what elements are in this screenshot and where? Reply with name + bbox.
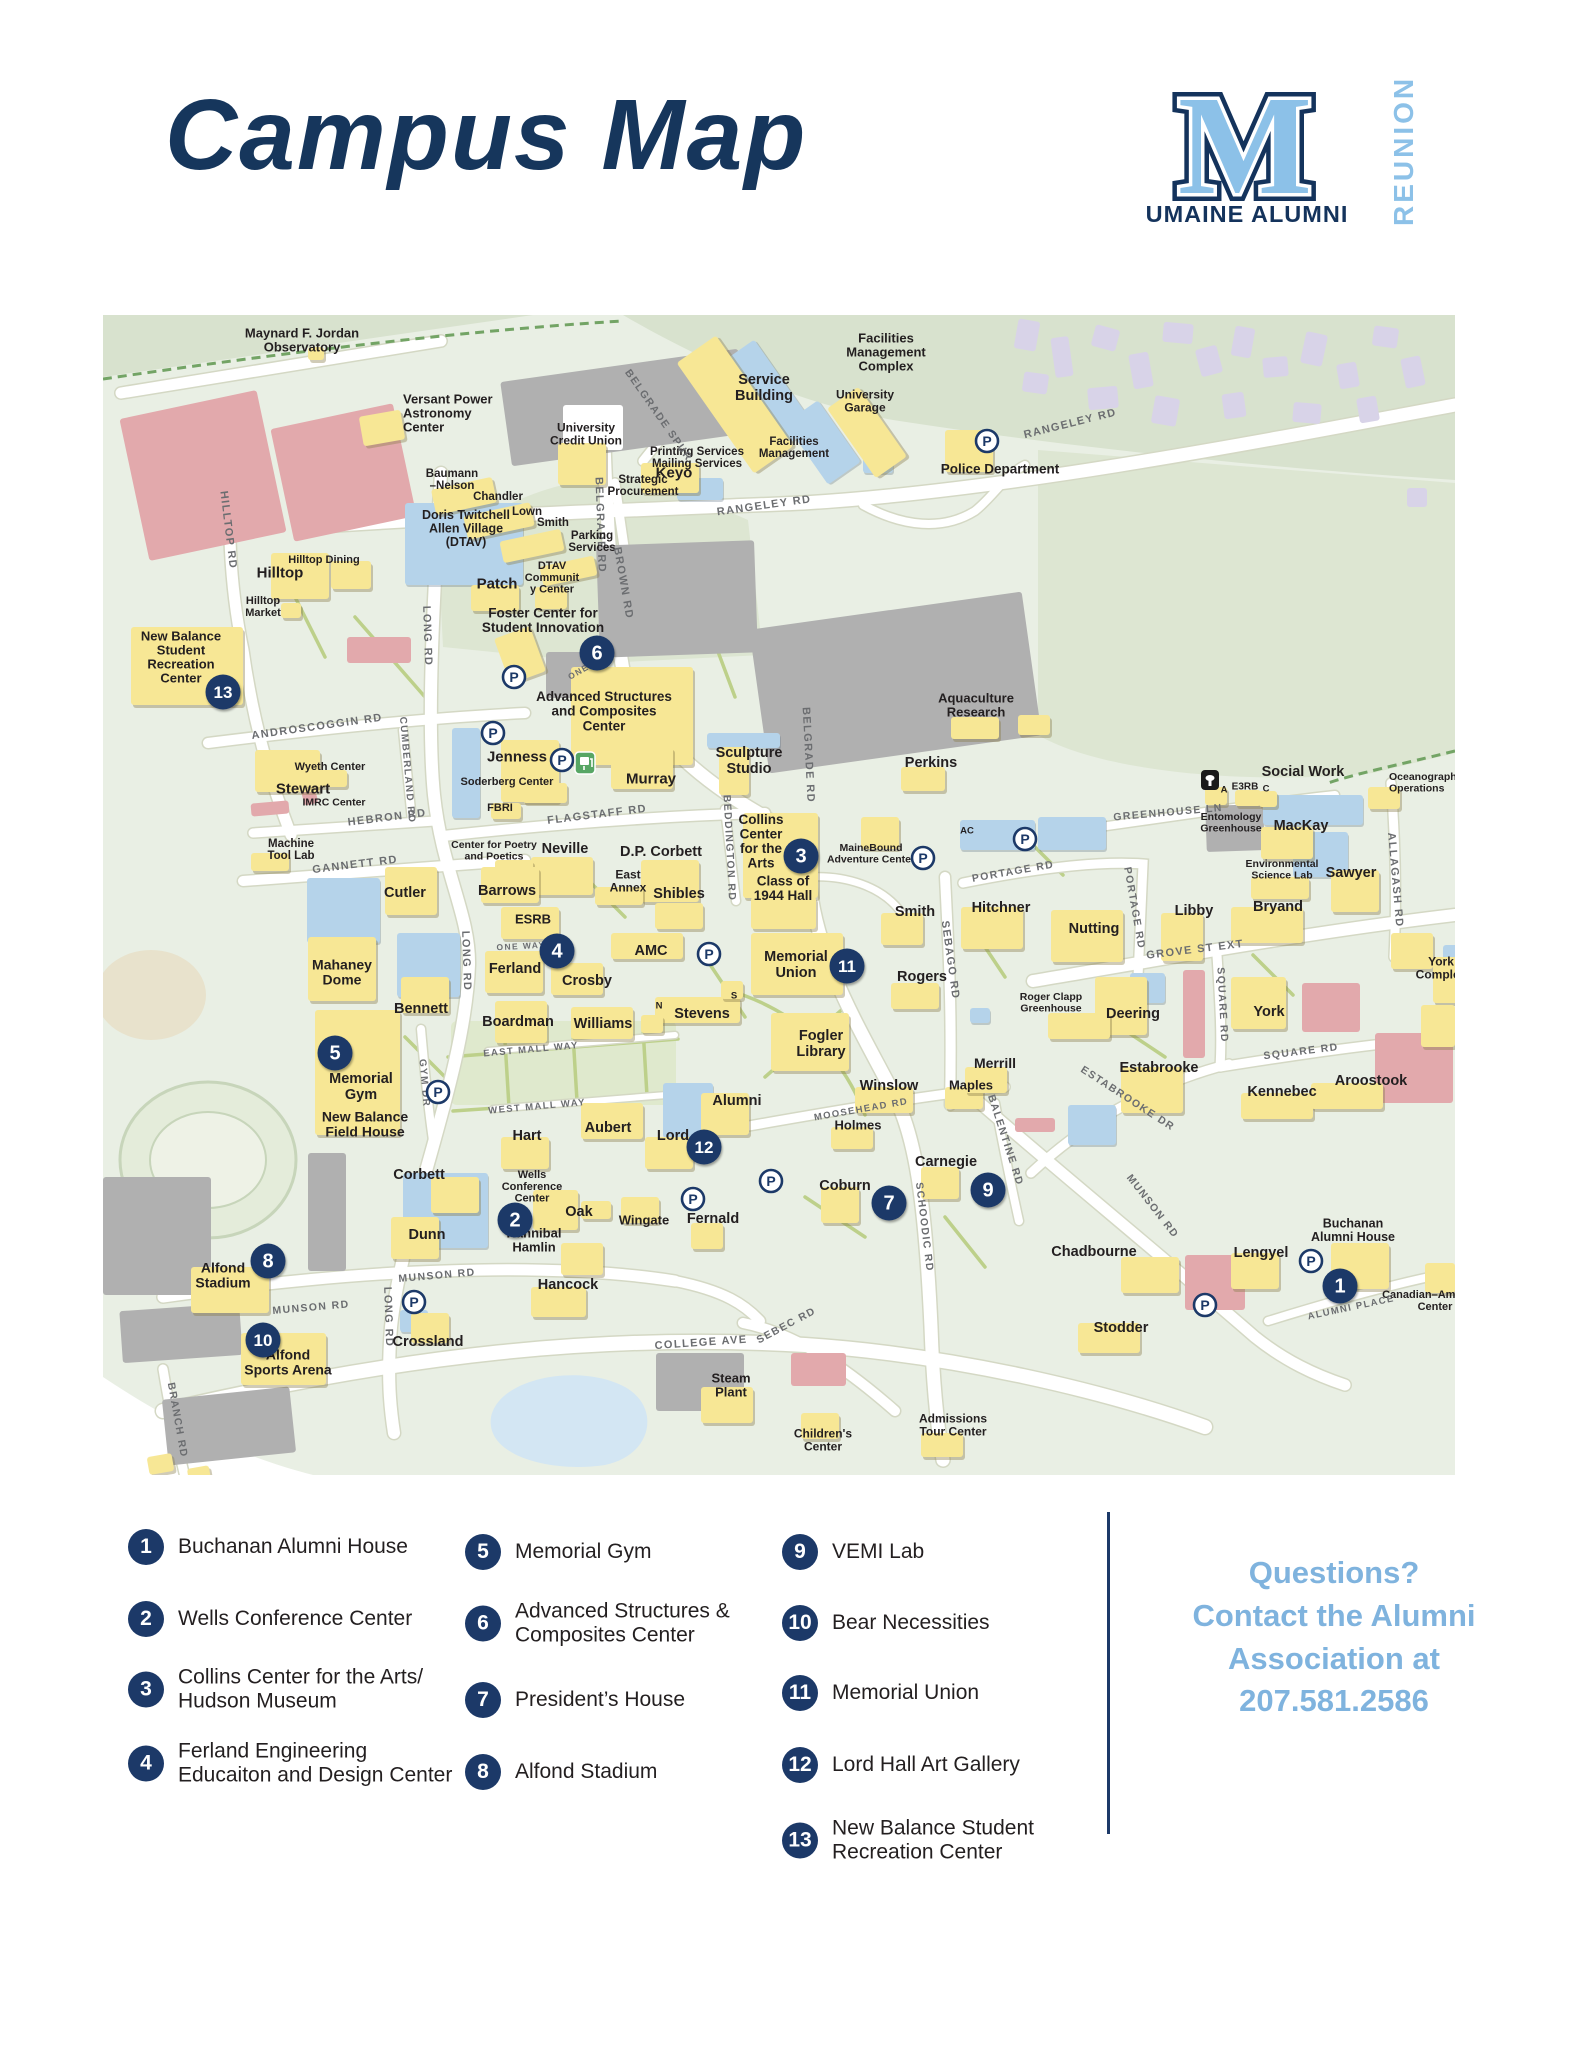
legend-item-7: 7President’s House: [465, 1682, 685, 1718]
parking-icon: P: [403, 1291, 425, 1313]
building-label: BuchananAlumni House: [1311, 1217, 1395, 1245]
building-label: EntomologyGreenhouse: [1200, 811, 1261, 834]
building-label: Bryand: [1253, 899, 1303, 915]
building-label: Lord: [657, 1128, 689, 1144]
building-label: MachineTool Lab: [267, 838, 314, 862]
svg-text:6: 6: [591, 643, 602, 665]
residential-building: [1221, 392, 1246, 420]
building-label: AMC: [634, 943, 668, 959]
legend-number-badge: 9: [782, 1534, 818, 1570]
legend-label: Alfond Stadium: [515, 1760, 657, 1784]
building-label: Baumann–Nelson: [426, 468, 478, 492]
building-label: Bennett: [394, 1001, 448, 1017]
building: [281, 603, 301, 618]
building-label: Stewart: [276, 780, 330, 797]
building-label: EnvironmentalScience Lab: [1246, 858, 1319, 881]
building-blue: [1038, 817, 1106, 850]
building-label: Perkins: [905, 755, 957, 771]
legend-number-badge: 11: [782, 1675, 818, 1711]
building: [561, 1243, 603, 1275]
svg-text:P: P: [488, 725, 497, 741]
svg-text:4: 4: [551, 941, 563, 963]
building-label: Crosby: [562, 973, 612, 989]
parking-lot-pink: [791, 1353, 846, 1386]
building-label: Merrill: [974, 1055, 1016, 1071]
map-marker-3: 3: [784, 839, 819, 874]
svg-text:P: P: [1306, 1253, 1315, 1269]
legend-label: Memorial Union: [832, 1681, 979, 1705]
legend-number-badge: 7: [465, 1682, 501, 1718]
building-label: Maples: [949, 1078, 993, 1093]
building-label: A: [1221, 784, 1228, 795]
building-label: Dunn: [408, 1227, 445, 1243]
building-label: Alumni: [712, 1093, 761, 1109]
building-label: Roger ClappGreenhouse: [1020, 991, 1082, 1014]
legend-item-12: 12Lord Hall Art Gallery: [782, 1747, 1020, 1783]
building-label: Smith: [895, 904, 935, 920]
svg-text:P: P: [704, 946, 713, 962]
parking-icon: P: [1014, 828, 1036, 850]
map-marker-7: 7: [872, 1186, 907, 1221]
building-label: HilltopMarket: [245, 595, 281, 619]
residential-building: [1356, 395, 1380, 423]
svg-text:8: 8: [262, 1251, 273, 1273]
legend-item-13: 13New Balance Student Recreation Center: [782, 1816, 1034, 1863]
parking-lot-pink: [1015, 1118, 1055, 1132]
building-blue: [1068, 1105, 1116, 1145]
building: [641, 1015, 663, 1033]
building-label: New BalanceField House: [322, 1108, 409, 1139]
building: [1391, 933, 1433, 969]
building-label: IMRC Center: [302, 797, 365, 809]
building-label: Murray: [626, 770, 677, 787]
building-label: Lengyel: [1234, 1245, 1289, 1261]
map-marker-9: 9: [971, 1173, 1006, 1208]
parking-icon: P: [427, 1081, 449, 1103]
legend-number-badge: 2: [128, 1601, 164, 1637]
building-label: C: [1263, 783, 1270, 794]
building-label: Oak: [565, 1204, 593, 1220]
residential-building: [1407, 488, 1427, 507]
residential-building: [1372, 325, 1400, 348]
legend-item-11: 11Memorial Union: [782, 1675, 979, 1711]
svg-text:P: P: [1020, 831, 1029, 847]
building-label: Sawyer: [1326, 865, 1377, 881]
page-title: Campus Map: [165, 78, 807, 193]
building-label: S: [731, 990, 737, 1001]
svg-text:P: P: [766, 1173, 775, 1189]
legend-item-2: 2Wells Conference Center: [128, 1601, 412, 1637]
legend-number-badge: 12: [782, 1747, 818, 1783]
building-label: Aroostook: [1335, 1073, 1408, 1089]
building-label: Stevens: [674, 1006, 730, 1022]
map-marker-5: 5: [318, 1036, 353, 1071]
map-marker-13: 13: [206, 675, 241, 710]
legend-number-badge: 8: [465, 1754, 501, 1790]
legend-item-1: 1Buchanan Alumni House: [128, 1529, 408, 1565]
parking-icon: P: [682, 1188, 704, 1210]
building-label: Smith: [537, 517, 569, 529]
legend-label: Collins Center for the Arts/ Hudson Muse…: [178, 1665, 423, 1712]
building: [1231, 977, 1286, 1029]
building-label: ParkingServices: [568, 530, 615, 554]
building-label: AdmissionsTour Center: [919, 1412, 987, 1439]
svg-text:P: P: [1200, 1297, 1209, 1313]
statue-icon: [1201, 770, 1219, 790]
legend-item-6: 6Advanced Structures & Composites Center: [465, 1599, 730, 1646]
svg-text:P: P: [982, 433, 991, 449]
road-label: LONG RD: [420, 606, 434, 667]
legend-number-badge: 1: [128, 1529, 164, 1565]
building-label: FoglerLibrary: [796, 1028, 845, 1060]
building-blue: [307, 878, 380, 943]
parking-lot-pink: [119, 390, 286, 561]
legend-item-5: 5Memorial Gym: [465, 1534, 652, 1570]
building-label: Stodder: [1094, 1320, 1149, 1336]
building-label: Chandler: [473, 491, 523, 503]
building-label: ESRB: [515, 912, 551, 927]
campus-map-svg: Maynard F. JordanObservatoryVersant Powe…: [103, 315, 1455, 1475]
building-label: Estabrooke: [1120, 1060, 1199, 1076]
building-label: Libby: [1175, 903, 1214, 919]
building-blue: [452, 728, 480, 818]
building-label: Boardman: [482, 1014, 554, 1030]
parking-icon: P: [976, 430, 998, 452]
building-label: Wyeth Center: [295, 761, 366, 773]
building-label: Jenness: [487, 748, 547, 765]
svg-text:13: 13: [214, 683, 233, 702]
legend-label: New Balance Student Recreation Center: [832, 1816, 1034, 1863]
building-label: Soderberg Center: [461, 776, 555, 788]
map-marker-8: 8: [251, 1244, 286, 1279]
map-marker-1: 1: [1323, 1269, 1358, 1304]
svg-text:P: P: [433, 1084, 442, 1100]
building-label: Crossland: [393, 1334, 464, 1350]
parking-icon: P: [912, 847, 934, 869]
building: [655, 903, 703, 929]
legend-number-badge: 5: [465, 1534, 501, 1570]
svg-text:1: 1: [1334, 1276, 1345, 1298]
building-label: Williams: [574, 1016, 633, 1032]
residential-building: [1022, 371, 1050, 394]
parking-lot-pink: [1302, 983, 1360, 1032]
building-label: Winslow: [860, 1078, 919, 1094]
legend-label: Lord Hall Art Gallery: [832, 1753, 1020, 1777]
building-label: Neville: [542, 841, 589, 857]
building: [531, 857, 593, 895]
building-label: York: [1253, 1004, 1285, 1020]
forest-area: [1038, 450, 1455, 777]
building-label: MaineBoundAdventure Center: [827, 842, 915, 865]
building-label: Nutting: [1069, 921, 1120, 937]
ev-charging-icon: [575, 752, 595, 774]
building-label: SteamPlant: [711, 1371, 750, 1400]
road-label: LONG RD: [459, 931, 473, 992]
building-label: Shibles: [653, 886, 705, 902]
legend-divider: [1107, 1512, 1110, 1834]
parking-icon: P: [503, 666, 525, 688]
legend-label: Memorial Gym: [515, 1540, 652, 1564]
parking-lot-pink: [1183, 970, 1205, 1058]
residential-building: [1162, 322, 1194, 345]
legend-label: Wells Conference Center: [178, 1607, 412, 1631]
legend-item-3: 3Collins Center for the Arts/ Hudson Mus…: [128, 1665, 423, 1712]
logo-reunion-text: REUNION: [1388, 78, 1419, 226]
building-label: Coburn: [819, 1178, 871, 1194]
building-label: Barrows: [478, 883, 536, 899]
building: [1121, 1257, 1179, 1293]
svg-text:P: P: [688, 1191, 697, 1207]
parking-lot-gray: [308, 1153, 346, 1271]
building-label: E3RB: [1232, 782, 1259, 793]
residential-building: [1151, 395, 1180, 427]
legend-number-badge: 10: [782, 1605, 818, 1641]
svg-text:5: 5: [329, 1043, 340, 1065]
building-label: Social Work: [1262, 764, 1346, 780]
parking-icon: P: [760, 1170, 782, 1192]
building-label: Wingate: [619, 1213, 669, 1228]
building-label: Hart: [512, 1128, 541, 1144]
campus-map-page: Campus Map M M M UMAINE ALUMNI REUNION: [0, 0, 1593, 2048]
building-label: UniversityCredit Union: [550, 421, 622, 448]
building-label: FBRI: [487, 802, 513, 814]
umaine-alumni-reunion-logo: M M M UMAINE ALUMNI REUNION: [1145, 78, 1445, 233]
legend-number-badge: 13: [782, 1822, 818, 1858]
building: [1421, 1005, 1455, 1047]
map-marker-12: 12: [687, 1130, 722, 1165]
building-label: Deering: [1106, 1006, 1160, 1022]
building-label: N: [656, 1000, 663, 1011]
building-label: Police Department: [941, 462, 1060, 477]
legend-item-10: 10Bear Necessities: [782, 1605, 990, 1641]
svg-text:P: P: [918, 850, 927, 866]
building-label: Patch: [477, 575, 518, 592]
parking-lot-pink: [347, 637, 411, 663]
legend-label: Bear Necessities: [832, 1611, 990, 1635]
building-label: Hilltop: [257, 564, 304, 581]
legend-number-badge: 4: [128, 1745, 164, 1781]
contact-info: Questions? Contact the Alumni Associatio…: [1118, 1552, 1550, 1723]
residential-building: [1336, 361, 1360, 389]
building-label: Holmes: [835, 1118, 882, 1133]
map-marker-10: 10: [246, 1323, 281, 1358]
map-marker-4: 4: [540, 934, 575, 969]
svg-text:10: 10: [254, 1331, 273, 1350]
parking-icon: P: [551, 749, 573, 771]
legend-label: President’s House: [515, 1688, 685, 1712]
map-marker-11: 11: [830, 949, 865, 984]
building-label: Kennebec: [1247, 1084, 1316, 1100]
building-label: AC: [960, 825, 974, 836]
legend-item-9: 9VEMI Lab: [782, 1534, 924, 1570]
legend-label: VEMI Lab: [832, 1540, 924, 1564]
building-label: Ferland: [489, 961, 541, 977]
building-label: D.P. Corbett: [620, 844, 702, 860]
parking-icon: P: [1300, 1250, 1322, 1272]
building-label: Hitchner: [972, 900, 1031, 916]
svg-text:3: 3: [795, 846, 806, 868]
pond: [491, 1375, 648, 1467]
building: [1048, 1013, 1110, 1039]
legend-item-4: 4Ferland Engineering Educaiton and Desig…: [128, 1739, 452, 1786]
svg-text:2: 2: [509, 1210, 520, 1232]
building-label: AquacultureResearch: [938, 691, 1014, 720]
svg-text:9: 9: [982, 1180, 993, 1202]
building-label: Aubert: [585, 1120, 632, 1136]
legend-number-badge: 3: [128, 1671, 164, 1707]
parking-icon: P: [1194, 1294, 1216, 1316]
svg-text:P: P: [409, 1294, 418, 1310]
residential-building: [1292, 402, 1322, 424]
building-label: Cutler: [384, 885, 426, 901]
building-label: ServiceBuilding: [735, 372, 793, 404]
building-label: Foster Center forStudent Innovation: [482, 605, 604, 635]
svg-text:12: 12: [695, 1138, 714, 1157]
campus-map: Maynard F. JordanObservatoryVersant Powe…: [103, 315, 1455, 1475]
logo-graphic: M M M UMAINE ALUMNI REUNION: [1145, 78, 1445, 233]
building-blue: [970, 1008, 990, 1023]
legend-label: Buchanan Alumni House: [178, 1535, 408, 1559]
parking-icon: P: [698, 943, 720, 965]
map-marker-6: 6: [580, 636, 615, 671]
legend-label: Ferland Engineering Educaiton and Design…: [178, 1739, 452, 1786]
building-label: Corbett: [393, 1167, 445, 1183]
building-label: Class of1944 Hall: [754, 873, 813, 903]
building-label: Chadbourne: [1051, 1244, 1136, 1260]
map-marker-2: 2: [498, 1203, 533, 1238]
legend-number-badge: 6: [465, 1605, 501, 1641]
legend-label: Advanced Structures & Composites Center: [515, 1599, 730, 1646]
svg-text:11: 11: [838, 957, 856, 976]
logo-wordmark: UMAINE ALUMNI: [1146, 201, 1349, 227]
building-label: Carnegie: [915, 1154, 977, 1170]
legend-item-8: 8Alfond Stadium: [465, 1754, 657, 1790]
svg-text:7: 7: [883, 1193, 894, 1215]
building-label: MacKay: [1274, 818, 1329, 834]
residential-building: [1262, 356, 1289, 378]
building-label: Hancock: [538, 1277, 599, 1293]
svg-text:P: P: [509, 669, 518, 685]
parking-icon: P: [482, 722, 504, 744]
building: [951, 717, 999, 739]
building-label: UniversityGarage: [836, 388, 894, 415]
building-label: Rogers: [897, 969, 947, 985]
building-label: AlfondStadium: [195, 1259, 250, 1290]
svg-text:P: P: [557, 752, 566, 768]
building: [1018, 715, 1050, 735]
building-label: Fernald: [687, 1211, 739, 1227]
building: [891, 983, 939, 1009]
